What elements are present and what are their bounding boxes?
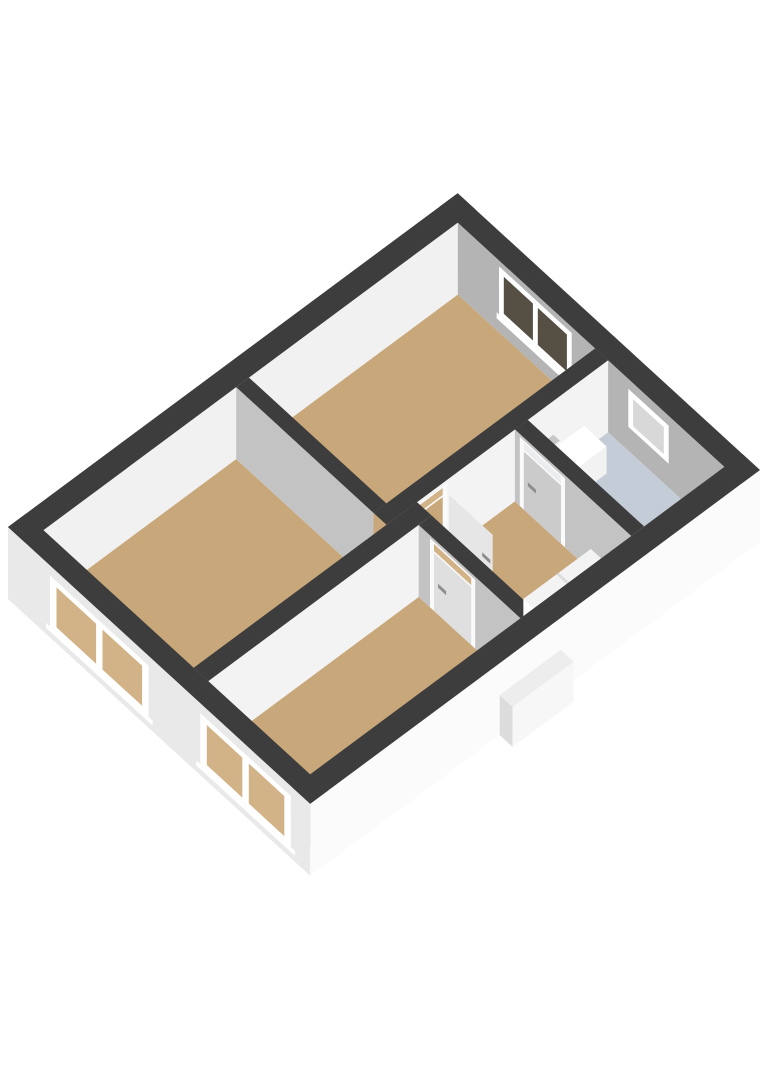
floorplan-canvas: [0, 0, 768, 1086]
floorplan-3d-view: [0, 0, 768, 1086]
